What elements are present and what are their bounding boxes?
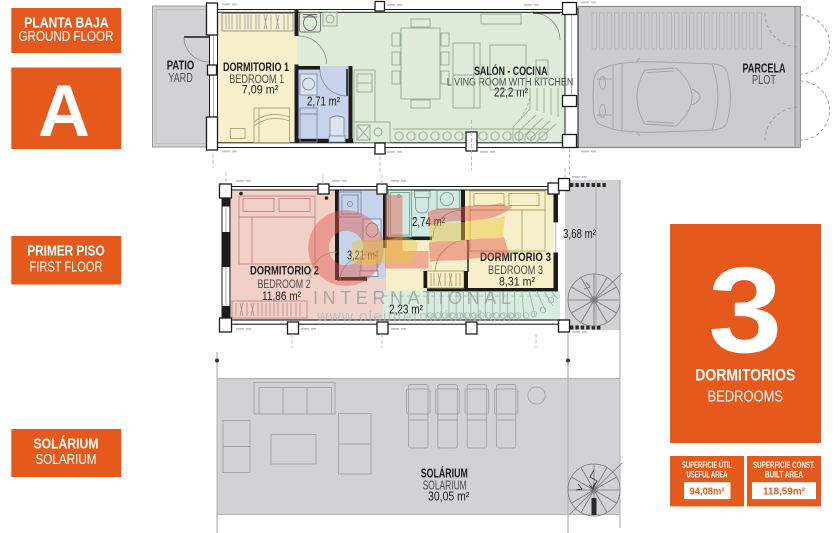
- svg-text:DORMITORIO 2: DORMITORIO 2: [250, 264, 319, 278]
- svg-text:7,09 m²: 7,09 m²: [242, 83, 279, 97]
- svg-text:30,05 m²: 30,05 m²: [428, 490, 469, 504]
- svg-text:A: A: [38, 71, 90, 152]
- svg-text:FIRST FLOOR: FIRST FLOOR: [30, 260, 103, 276]
- svg-text:SUPERFICIE ÚTIL: SUPERFICIE ÚTIL: [682, 459, 732, 470]
- svg-text:3,68 m²: 3,68 m²: [563, 227, 596, 241]
- svg-text:22,2 m²: 22,2 m²: [494, 86, 528, 100]
- svg-text:BEDROOMS: BEDROOMS: [708, 389, 784, 406]
- svg-text:YARD: YARD: [168, 71, 193, 85]
- svg-text:USEFUL AREA: USEFUL AREA: [687, 470, 728, 480]
- svg-text:PRIMER PISO: PRIMER PISO: [27, 244, 105, 260]
- svg-text:www.oleinternational.com: www.oleinternational.com: [316, 309, 522, 326]
- svg-text:DORMITORIOS: DORMITORIOS: [695, 366, 795, 385]
- svg-text:GROUND FLOOR: GROUND FLOOR: [19, 29, 114, 45]
- svg-text:11,86 m²: 11,86 m²: [262, 289, 301, 303]
- svg-text:8,31 m²: 8,31 m²: [499, 275, 535, 289]
- svg-text:INTERNATIONAL: INTERNATIONAL: [313, 288, 515, 308]
- svg-text:118,59m²: 118,59m²: [763, 486, 805, 498]
- svg-text:PLOT: PLOT: [752, 73, 776, 87]
- svg-text:94,08m²: 94,08m²: [690, 486, 725, 498]
- svg-text:DORMITORIO 1: DORMITORIO 1: [223, 60, 289, 74]
- svg-text:SOLARIUM: SOLARIUM: [36, 452, 97, 468]
- svg-text:SUPERFICIE CONST.: SUPERFICIE CONST.: [753, 460, 815, 470]
- svg-text:BUILT AREA: BUILT AREA: [765, 470, 803, 480]
- svg-text:3: 3: [708, 242, 782, 378]
- svg-text:2,71 m²: 2,71 m²: [307, 95, 340, 109]
- svg-text:SOLÁRIUM: SOLÁRIUM: [34, 435, 99, 452]
